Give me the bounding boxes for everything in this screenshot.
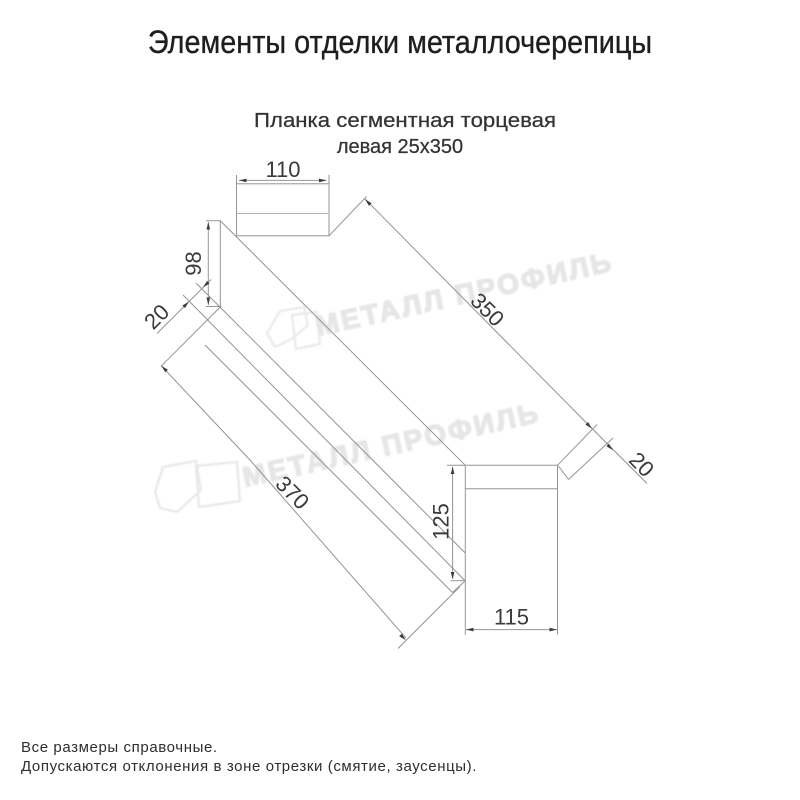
svg-text:125: 125	[429, 503, 454, 540]
svg-text:МЕТАЛЛ ПРОФИЛЬ: МЕТАЛЛ ПРОФИЛЬ	[313, 246, 616, 342]
svg-text:20: 20	[624, 447, 659, 482]
svg-text:20: 20	[139, 299, 174, 334]
svg-text:110: 110	[265, 157, 300, 182]
svg-text:115: 115	[494, 605, 529, 630]
svg-text:98: 98	[181, 251, 206, 275]
